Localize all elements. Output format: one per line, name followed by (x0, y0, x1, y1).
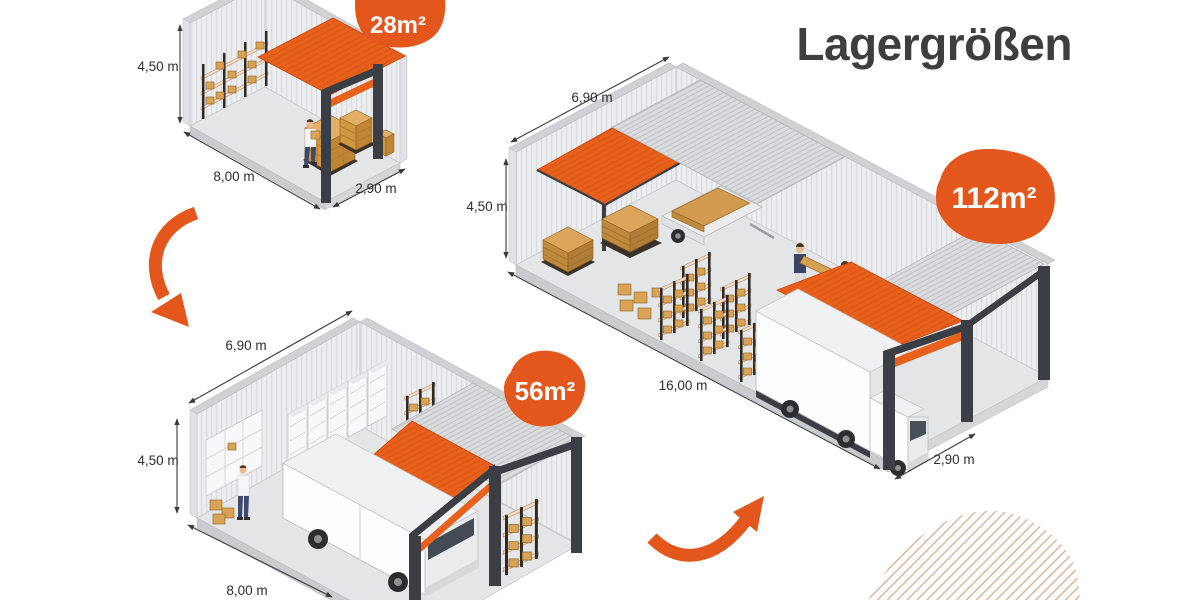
title-line2: Lagergrößen (748, 19, 1072, 69)
unit-112-back-label: 6,90 m (571, 90, 612, 105)
unit-112-height-label: 4,50 m (466, 199, 507, 214)
unit-56-illustration: 6,90 m 4,50 m 8,00 m 56m² (137, 311, 585, 600)
unit-28-height-label: 4,50 m (137, 59, 178, 74)
unit-112-depth-label: 16,00 m (659, 378, 708, 393)
infographic-canvas: Unsere flexiblen Lagergrößen (0, 0, 1200, 600)
unit-56-pillar-mid (489, 466, 501, 586)
unit-112-width-label: 2,90 m (933, 452, 974, 467)
badge-56-label: 56m² (515, 376, 576, 406)
unit-28-pillar-right (373, 64, 383, 159)
page-title: Unsere flexiblen Lagergrößen (748, 0, 1072, 69)
title-line1-cropped: Unsere flexiblen (748, 0, 1072, 4)
unit-56-depth-label: 8,00 m (226, 583, 267, 598)
unit-28-pillar-left (321, 90, 331, 203)
unit-56-corner-post (571, 437, 582, 553)
badge-28-label: 28m² (370, 12, 426, 39)
unit-112-pillar-mid (961, 320, 973, 422)
unit-56-height-label: 4,50 m (137, 453, 178, 468)
decorative-stripes (868, 511, 1080, 600)
isometric-scene: 4,50 m 8,00 m 2,90 m 28m² (0, 0, 1200, 600)
unit-28-width-label: 2,90 m (355, 181, 396, 196)
unit-28-depth-label: 8,00 m (213, 169, 254, 184)
badge-112-label: 112m² (951, 182, 1036, 215)
unit-112-corner-post (1038, 266, 1050, 380)
unit-56-back-label: 6,90 m (225, 338, 266, 353)
flow-arrow-2 (652, 496, 764, 555)
flow-arrow-1 (151, 213, 196, 327)
unit-112-pillar-left (883, 352, 895, 470)
unit-28-illustration: 4,50 m 8,00 m 2,90 m 28m² (137, 0, 445, 210)
unit-56-pillar-left (409, 536, 421, 600)
